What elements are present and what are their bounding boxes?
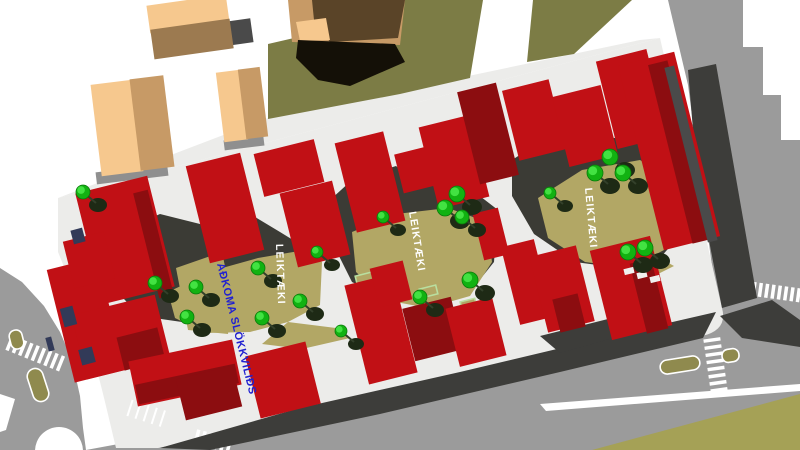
tree-highlight xyxy=(190,281,198,289)
tree-highlight xyxy=(149,277,157,285)
tree-highlight xyxy=(256,312,264,320)
tree-highlight xyxy=(588,166,597,175)
label-playground-1: LEIKTÆKI xyxy=(273,244,287,305)
tree-highlight xyxy=(414,291,422,299)
tree-highlight xyxy=(638,241,647,250)
site-plan-canvas: LEIKTÆKILEIKTÆKILEIKTÆKIAÐKOMA SLÖKKVILI… xyxy=(0,0,800,450)
tree-highlight xyxy=(463,273,472,282)
traffic-island-right-small xyxy=(721,348,740,363)
tree-highlight xyxy=(438,201,447,210)
tree-highlight xyxy=(77,186,85,194)
tree-highlight xyxy=(621,245,630,254)
tree-highlight xyxy=(294,295,302,303)
tree-highlight xyxy=(336,326,343,333)
tree-highlight xyxy=(378,212,385,219)
site-plan-screenshot: LEIKTÆKILEIKTÆKILEIKTÆKIAÐKOMA SLÖKKVILI… xyxy=(0,0,800,450)
tree-highlight xyxy=(450,187,459,196)
tree-highlight xyxy=(616,166,625,175)
tree-highlight xyxy=(312,247,319,254)
north-building-roof-light xyxy=(296,18,330,41)
tree-highlight xyxy=(456,211,464,219)
tree-highlight xyxy=(545,188,552,195)
tree-highlight xyxy=(181,311,189,319)
tree-highlight xyxy=(603,150,612,159)
tree-highlight xyxy=(252,262,260,270)
